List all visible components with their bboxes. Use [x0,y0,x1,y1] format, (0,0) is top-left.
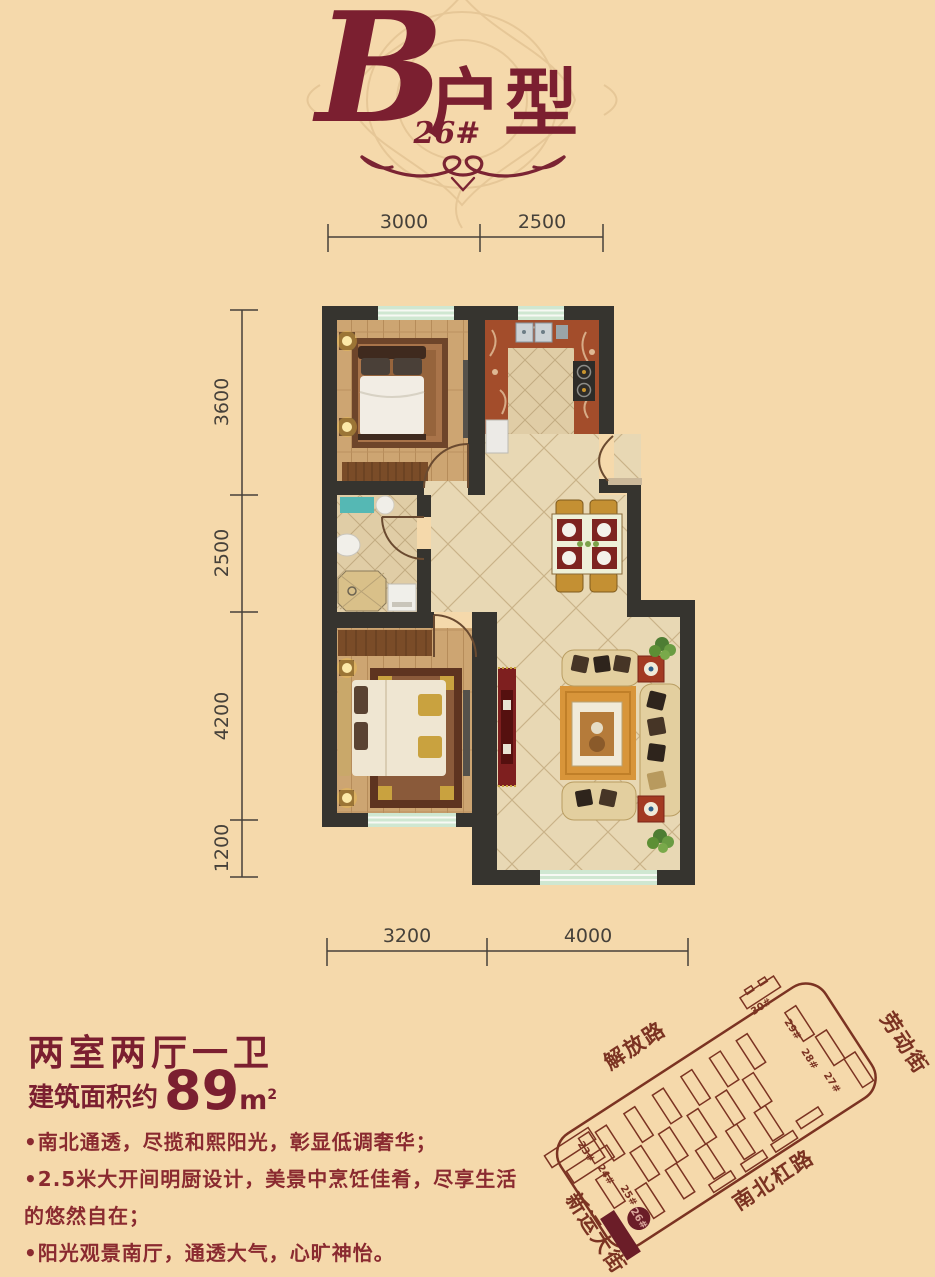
bedroom2-window [378,306,454,320]
label-28: 28# [798,1047,819,1072]
building-28 [815,1030,844,1066]
dim-bottom-2: 4000 [564,925,612,947]
street-jiefang: 解放路 [600,1017,671,1075]
stove [573,361,595,401]
label-27: 27# [821,1070,842,1095]
area-unit-sup: 2 [267,1087,277,1103]
dim-left-2: 2500 [211,529,233,577]
loveseat-bottom [562,782,636,820]
floor-plan [322,306,695,885]
dim-top-2: 2500 [518,211,566,233]
tv-panel [463,690,470,776]
living-window [540,870,657,885]
dim-left-4: 1200 [211,824,233,872]
dim-left-3: 4200 [211,692,233,740]
kitchen-window [518,306,564,320]
area-value: 89 [164,1064,239,1118]
bed2-duvet [360,376,424,436]
bench [342,462,428,481]
lamp [342,422,352,432]
lamp [342,336,352,346]
site-building-labels: 30# 29# 28# 27# 23# 24# 25# 26# [564,990,847,1236]
area-unit-m: m [239,1085,267,1116]
area-unit: m2 [239,1085,277,1118]
toilet [334,534,360,556]
bed2-headboard [358,346,426,359]
area-prefix: 建筑面积约 [28,1077,158,1118]
fridge [486,420,508,453]
bath-plants [340,497,374,513]
label-29: 29# [782,1017,803,1042]
kitchen-appliance [556,325,568,339]
floorplan-poster: 3000 2500 3600 2500 4200 1200 3200 4000 [0,0,935,1277]
header-flourish [362,157,564,190]
feature-item: •南北通透，尽揽和熙阳光，彰显低调奢华； [24,1124,524,1161]
dim-bottom-1: 3200 [383,925,431,947]
feature-list: •南北通透，尽揽和熙阳光，彰显低调奢华； •2.5米大开间明厨设计，美景中烹饪佳… [24,1124,524,1272]
building-number: 26# [392,116,502,151]
wardrobe [338,630,432,656]
dim-left-1: 3600 [211,378,233,426]
site-map: 30# 29# 28# 27# 23# 24# 25# 26# 解放路 劳动街 … [505,905,935,1277]
street-laodong: 劳动街 [875,1008,933,1079]
label-30: 30# [749,996,774,1017]
feature-item: •2.5米大开间明厨设计，美景中烹饪佳肴，尽享生活的悠然自在； [24,1161,524,1235]
area-line: 建筑面积约 89 m2 [28,1062,277,1118]
master-headboard [338,678,351,776]
feature-item: •阳光观景南厅，通透大气，心旷神怡。 [24,1235,524,1272]
master-window [368,813,456,827]
dim-top-1: 3000 [380,211,428,233]
building-27 [844,1052,873,1088]
